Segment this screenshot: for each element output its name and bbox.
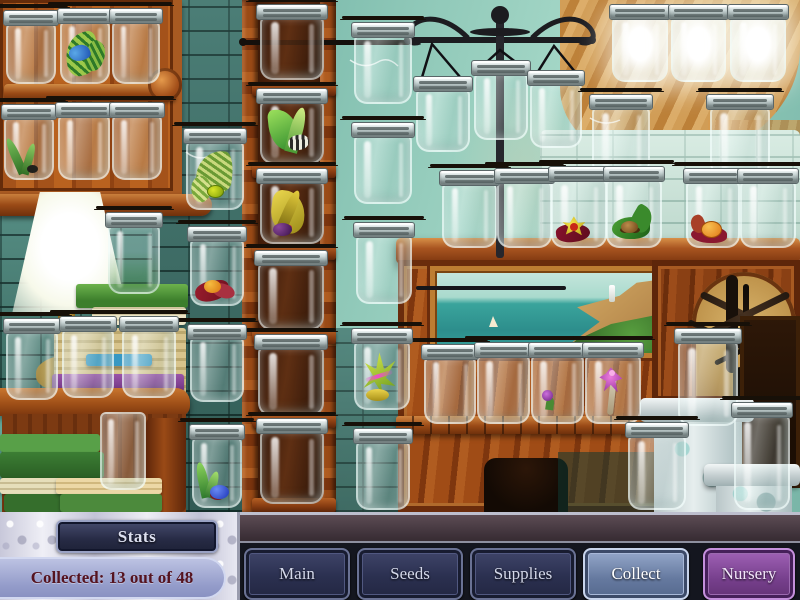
specimen-purple-floret [534, 369, 581, 419]
jar-empty[interactable] [6, 12, 56, 84]
specimen-magenta-dragonfly [357, 355, 406, 405]
jar-glass [416, 88, 470, 152]
jar-empty[interactable] [474, 62, 528, 140]
jar-lid [183, 128, 248, 144]
jar-empty[interactable] [424, 346, 476, 424]
jar-glass [112, 114, 162, 180]
jar-stripe-beetle[interactable] [260, 90, 324, 164]
jar-lid [737, 168, 800, 184]
jar-green-leaf-spider[interactable] [606, 168, 662, 248]
jar-glass [424, 356, 476, 424]
jar-yellow-dragonfly[interactable] [551, 168, 607, 248]
jar-empty[interactable] [671, 6, 726, 82]
jar-lid [609, 4, 672, 20]
jar-curl-leaf-bug[interactable] [186, 130, 244, 210]
specimen-yellow-leaf-purple-bug [264, 193, 320, 239]
jar-empty[interactable] [58, 104, 110, 180]
specimen-jar-layer [0, 0, 800, 512]
specimen-grass-bug [7, 129, 51, 175]
jar-empty[interactable] [260, 6, 324, 80]
jar-glass [6, 22, 56, 84]
specimen-yellow-dragonfly [554, 193, 603, 243]
hud-top-strip [240, 515, 800, 543]
jar-empty[interactable] [678, 330, 738, 426]
jar-lid [625, 422, 690, 438]
jar-empty[interactable] [122, 318, 176, 398]
jar-empty[interactable] [260, 420, 324, 504]
jar-empty[interactable] [477, 344, 530, 424]
jar-lid [3, 318, 61, 334]
jar-glass [442, 182, 497, 248]
jar-lid [589, 94, 654, 110]
jar-empty[interactable] [354, 24, 412, 104]
jar-lid [668, 4, 730, 20]
jar-lid [474, 342, 533, 358]
jar-orange-fruit-bug[interactable] [686, 170, 740, 248]
jar-lid [439, 170, 501, 186]
jar-empty[interactable] [258, 336, 324, 416]
jar-empty[interactable] [612, 6, 668, 82]
jar-lid [187, 324, 247, 340]
jar-lid [256, 4, 328, 20]
hud-left-panel: Stats Collected: 13 out of 48 [0, 512, 240, 600]
jar-lid [254, 250, 328, 266]
specimen-purple-orchid-bug [588, 369, 637, 419]
jar-red-leaf-orange-bug[interactable] [190, 228, 244, 306]
jar-lid [256, 418, 328, 434]
jar-empty[interactable] [592, 96, 650, 176]
jar-lid [731, 402, 794, 418]
specimen-blue-butterfly [63, 33, 107, 79]
jar-glass [734, 414, 790, 510]
jar-lid [683, 168, 743, 184]
jar-empty[interactable] [356, 430, 410, 510]
nav-button-main[interactable]: Main [244, 548, 350, 600]
jar-empty[interactable] [356, 224, 412, 304]
jar-empty[interactable] [416, 78, 470, 152]
jar-glass [710, 106, 770, 176]
jar-glass [497, 180, 552, 248]
jar-glass [190, 336, 244, 402]
jar-glass [6, 330, 58, 400]
jar-glass [628, 434, 686, 510]
nav-button-nursery[interactable]: Nursery [703, 548, 795, 600]
nav-button-seeds[interactable]: Seeds [357, 548, 463, 600]
specimen-green-leaf-spider [609, 193, 658, 243]
jar-empty[interactable] [497, 170, 552, 248]
stats-button[interactable]: Stats [56, 520, 218, 553]
jar-glass [354, 34, 412, 104]
jar-lid [1, 104, 57, 120]
jar-glass [678, 340, 738, 426]
jar-lid [187, 226, 247, 242]
jar-glass [612, 16, 668, 82]
jar-empty[interactable] [112, 10, 160, 84]
jar-glass [58, 114, 110, 180]
specimen-curl-leaf-bug [189, 155, 240, 205]
jar-lid [105, 212, 163, 228]
jar-glass [354, 134, 412, 204]
jar-purple-orchid-bug[interactable] [585, 344, 641, 424]
jar-glass [474, 72, 528, 140]
jar-blue-butterfly[interactable] [60, 10, 110, 84]
jar-sprout-blue-bug[interactable] [192, 426, 242, 508]
nav-button-supplies[interactable]: Supplies [470, 548, 576, 600]
jar-lid [353, 428, 413, 444]
jar-empty[interactable] [112, 104, 162, 180]
jar-glass [122, 328, 176, 398]
jar-lid [189, 424, 245, 440]
jar-glass [730, 16, 786, 82]
jar-lid [674, 328, 741, 344]
jar-grass-bug[interactable] [4, 106, 54, 180]
jar-glass [260, 16, 324, 80]
jar-glass [258, 262, 324, 330]
jar-empty[interactable] [628, 424, 686, 510]
jar-lid [254, 334, 328, 350]
jar-lid [471, 60, 531, 76]
jar-empty[interactable] [730, 6, 786, 82]
jar-empty[interactable] [258, 252, 324, 330]
specimen-red-leaf-orange-bug [193, 252, 241, 300]
specimen-stripe-beetle [264, 113, 320, 159]
jar-lid [727, 4, 790, 20]
jar-yellow-leaf-purple-bug[interactable] [260, 170, 324, 244]
jar-empty[interactable] [6, 320, 58, 400]
jar-empty[interactable] [108, 214, 160, 294]
specimen-sprout-blue-bug [195, 451, 239, 502]
jar-lid [109, 8, 163, 24]
jar-lid [351, 22, 416, 38]
jar-lid [706, 94, 773, 110]
jar-lid [528, 342, 587, 358]
bottom-hud: Stats Collected: 13 out of 48 MainSeedsS… [0, 512, 800, 600]
jar-lid [55, 102, 113, 118]
jar-lid [527, 70, 585, 86]
jar-lid [494, 168, 556, 184]
jar-empty[interactable] [62, 318, 114, 398]
jar-lid [351, 328, 414, 344]
jar-glass [62, 328, 114, 398]
jar-glass [530, 82, 582, 148]
jar-lid [119, 316, 179, 332]
jar-glass [108, 224, 160, 294]
jar-lid [603, 166, 666, 182]
hud-right-panel: MainSeedsSuppliesCollectNursery [240, 515, 800, 600]
jar-glass [740, 180, 796, 248]
jar-glass [112, 20, 160, 84]
jar-lid [582, 342, 645, 358]
game-screen: Stats Collected: 13 out of 48 MainSeedsS… [0, 0, 800, 600]
jar-lid [256, 168, 328, 184]
jar-glass [356, 234, 412, 304]
specimen-orange-fruit-bug [689, 194, 737, 242]
jar-empty[interactable] [740, 170, 796, 248]
jar-empty[interactable] [442, 172, 497, 248]
jar-lid [59, 316, 117, 332]
jar-glass [671, 16, 726, 82]
nav-button-collect[interactable]: Collect [583, 548, 689, 600]
jar-lid [353, 222, 416, 238]
jar-lid [109, 102, 165, 118]
jar-empty[interactable] [190, 326, 244, 402]
jar-lid [256, 88, 328, 104]
jar-glass [356, 440, 410, 510]
jar-purple-floret[interactable] [531, 344, 584, 424]
jar-lid [3, 10, 59, 26]
jar-empty[interactable] [100, 412, 146, 490]
jar-lid [413, 76, 473, 92]
jar-empty[interactable] [530, 72, 582, 148]
nav-button-row: MainSeedsSuppliesCollectNursery [240, 545, 800, 600]
nursery-room-scene [0, 0, 800, 512]
jar-lid [548, 166, 611, 182]
jar-empty[interactable] [734, 404, 790, 510]
jar-lid [421, 344, 479, 360]
jar-glass [258, 346, 324, 416]
jar-glass [260, 430, 324, 504]
collected-counter: Collected: 13 out of 48 [0, 557, 226, 599]
jar-glass [100, 412, 146, 490]
jar-glass [477, 354, 530, 424]
jar-empty[interactable] [354, 124, 412, 204]
jar-lid [351, 122, 416, 138]
jar-lid [57, 8, 113, 24]
jar-magenta-dragonfly[interactable] [354, 330, 410, 410]
